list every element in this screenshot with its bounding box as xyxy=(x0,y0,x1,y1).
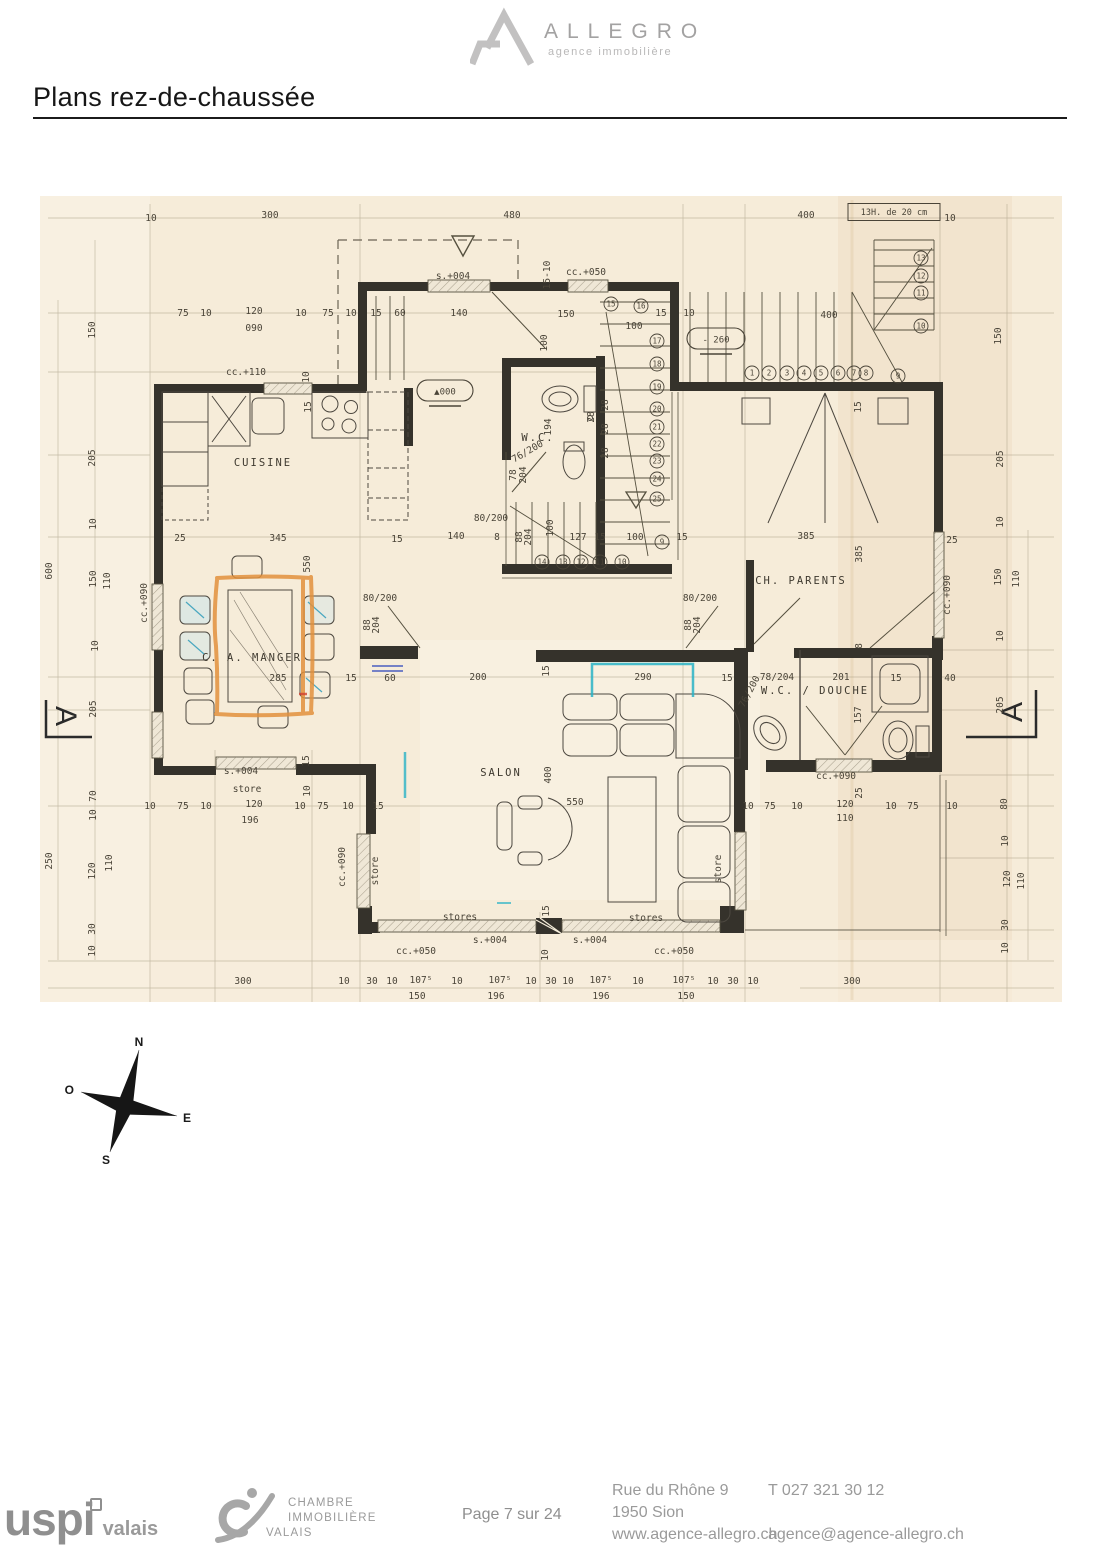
dim-label: 10 xyxy=(747,976,759,987)
dim-label: 75 xyxy=(177,801,188,812)
page-number: Page 7 sur 24 xyxy=(462,1506,562,1524)
dim-label: 290 xyxy=(634,672,651,683)
dim-label: 70 xyxy=(88,790,99,802)
step-number: 9 xyxy=(660,538,665,547)
dim-label: 400 xyxy=(797,210,814,221)
dim-label: 10 xyxy=(525,976,537,987)
dim-label: 10 xyxy=(946,801,958,812)
step-number: 12 xyxy=(576,558,585,567)
dim-label: 120 xyxy=(87,862,98,879)
dim-label: 205 xyxy=(87,449,98,466)
dim-label: 15 xyxy=(345,673,356,684)
step-number: 15 xyxy=(606,300,615,309)
dim-label: 150 xyxy=(88,570,99,587)
dim-label: 28 xyxy=(586,411,597,423)
uspi-region: valais xyxy=(103,1518,159,1540)
compass-star-icon xyxy=(81,1050,177,1152)
step-number: 19 xyxy=(652,383,661,392)
floor-plan-scan: A A 300480400101075101200901075101560140… xyxy=(0,0,1100,1561)
dim-label: 15-10 xyxy=(542,260,553,289)
phone-number: T 027 321 30 12 xyxy=(768,1480,964,1502)
dim-label: store xyxy=(713,854,724,883)
dim-label: 75 xyxy=(764,801,775,812)
dim-label: 15 xyxy=(301,755,312,766)
dim-label: 10 xyxy=(562,976,574,987)
dim-label: 28 xyxy=(600,423,611,435)
dim-label: 196 xyxy=(592,991,609,1002)
dim-label: 30 xyxy=(545,976,557,987)
uspi-square-icon xyxy=(90,1498,102,1511)
dim-label: 10 xyxy=(302,785,313,797)
room-label: W.C. / DOUCHE xyxy=(761,685,869,697)
dim-label: 385 xyxy=(854,545,865,562)
dim-label: cc.+090 xyxy=(816,771,856,782)
dim-label: 15 xyxy=(594,532,605,543)
dim-label: 10 xyxy=(200,308,212,319)
step-number: 23 xyxy=(652,457,661,466)
dim-label: 25 xyxy=(854,787,865,798)
compass-west: O xyxy=(65,1083,74,1097)
dim-label: 60 xyxy=(394,308,406,319)
dim-label: 15 xyxy=(303,401,314,412)
dim-label: 10 xyxy=(294,801,306,812)
dim-label: 300 xyxy=(234,976,251,987)
dim-label: 15 xyxy=(391,534,402,545)
section-letter: A xyxy=(49,706,82,726)
step-number: 12 xyxy=(916,272,925,281)
dim-label: 28 xyxy=(600,447,611,459)
compass-south: S xyxy=(102,1153,110,1167)
uspi-logo: uspivalais xyxy=(4,1492,158,1546)
dim-label: 120 xyxy=(245,306,262,317)
dim-label: 110 xyxy=(836,813,853,824)
room-label: C. A. MANGER xyxy=(202,652,302,664)
dim-label: 10 xyxy=(944,213,956,224)
compass-east: E xyxy=(183,1111,191,1125)
dim-label: 201 xyxy=(832,672,849,683)
dim-label: 120 xyxy=(836,799,853,810)
dim-label: 10 xyxy=(295,308,307,319)
dim-label: 100 xyxy=(625,321,642,332)
dim-label: 30 xyxy=(727,976,739,987)
step-number: 20 xyxy=(652,405,662,414)
dim-label: 110 xyxy=(102,572,113,589)
dim-label: 204 xyxy=(692,616,703,633)
dim-label: 196 xyxy=(241,815,258,826)
dim-label: 204 xyxy=(523,528,534,545)
agency-address: Rue du Rhône 9 1950 Sion www.agence-alle… xyxy=(612,1480,777,1546)
address-line: 1950 Sion xyxy=(612,1502,777,1524)
dim-label: 15 xyxy=(541,905,552,916)
dim-label: 80/200 xyxy=(363,593,398,604)
dim-label: 10 xyxy=(345,308,357,319)
level-label: ▲000 xyxy=(434,388,456,398)
dim-label: 200 xyxy=(469,672,486,683)
step-number: 14 xyxy=(537,558,547,567)
dim-label: 10 xyxy=(632,976,644,987)
dim-label: 10 xyxy=(995,516,1006,528)
step-number: 18 xyxy=(652,360,662,369)
step-number: 16 xyxy=(636,302,646,311)
dim-label: store xyxy=(370,856,381,885)
dim-label: 75 xyxy=(322,308,333,319)
dim-label: cc.+050 xyxy=(396,946,436,957)
dim-label: 100 xyxy=(539,334,550,351)
dim-label: 75 xyxy=(317,801,328,812)
page-footer: uspivalais CHAMBRE IMMOBILIÈRE VALAIS Pa… xyxy=(0,1480,1100,1561)
dim-label: 157 xyxy=(853,706,864,723)
dim-label: 140 xyxy=(450,308,467,319)
dim-label: 300 xyxy=(843,976,860,987)
dim-label: s.+004 xyxy=(436,271,471,282)
dim-label: store xyxy=(233,784,262,795)
uspi-wordmark: uspi xyxy=(4,1493,95,1545)
dim-label: 10 xyxy=(301,371,312,383)
dim-label: 25 xyxy=(946,535,957,546)
dim-label: 10 xyxy=(683,308,695,319)
dim-label: 8 xyxy=(854,643,865,649)
step-number: 13 xyxy=(916,254,925,263)
step-number: 7 xyxy=(852,369,857,378)
dim-label: cc.+090 xyxy=(942,575,953,615)
dim-label: 090 xyxy=(245,323,262,334)
dim-label: 10 xyxy=(200,801,212,812)
dim-label: 15 xyxy=(541,665,552,676)
step-number: 4 xyxy=(802,369,807,378)
dim-label: cc.+110 xyxy=(226,367,266,378)
dim-label: 30 xyxy=(366,976,378,987)
room-label: CUISINE xyxy=(234,457,292,469)
dim-label: 127 xyxy=(569,532,586,543)
dim-label: 8 xyxy=(494,532,500,543)
dim-label: 550 xyxy=(566,797,583,808)
step-number: 21 xyxy=(652,423,661,432)
step-number: 17 xyxy=(652,337,661,346)
dim-label: cc.+050 xyxy=(566,267,606,278)
dim-label: 15 xyxy=(890,673,901,684)
dim-label: 15 xyxy=(721,673,732,684)
dim-label: s.+004 xyxy=(573,935,608,946)
civ-text: CHAMBRE IMMOBILIÈRE VALAIS xyxy=(288,1496,377,1541)
step-number: 11 xyxy=(595,558,604,567)
dim-label: 10 xyxy=(995,630,1006,642)
dim-label: 110 xyxy=(104,854,115,871)
dim-label: 100 xyxy=(545,519,556,536)
step-number: 2 xyxy=(767,369,772,378)
step-number: 6 xyxy=(836,369,841,378)
civ-line: VALAIS xyxy=(266,1526,377,1541)
dim-label: 400 xyxy=(820,310,837,321)
dim-label: 30 xyxy=(1000,919,1011,931)
dim-label: 205 xyxy=(88,700,99,717)
dim-label: 10 xyxy=(145,213,157,224)
dim-label: 15 xyxy=(370,308,381,319)
dim-label: 150 xyxy=(993,568,1004,585)
chair xyxy=(304,596,334,624)
step-number: 24 xyxy=(652,475,662,484)
dim-label: cc.+090 xyxy=(139,583,150,623)
step-number: 11 xyxy=(916,289,925,298)
note-text: 13H. de 20 cm xyxy=(861,208,928,218)
dim-label: 300 xyxy=(261,210,278,221)
dim-label: 107⁵ xyxy=(489,975,512,986)
agency-website-link[interactable]: www.agence-allegro.ch xyxy=(612,1524,777,1546)
dim-label: 205 xyxy=(995,696,1006,713)
level-label: - 260 xyxy=(702,336,729,346)
dim-label: 10 xyxy=(386,976,398,987)
dim-label: 285 xyxy=(269,673,286,684)
step-number: 25 xyxy=(652,495,661,504)
dim-label: 75 xyxy=(907,801,918,812)
dim-label: 204 xyxy=(518,466,529,483)
dim-label: 10 xyxy=(451,976,463,987)
dim-label: 150 xyxy=(677,991,694,1002)
step-number: 9 xyxy=(896,372,901,381)
room-label: CH. PARENTS xyxy=(755,575,847,587)
dim-label: 400 xyxy=(543,766,554,783)
dim-label: 60 xyxy=(384,673,396,684)
dim-label: 15 xyxy=(853,401,864,412)
dim-label: 110 xyxy=(1011,570,1022,587)
dim-label: 10 xyxy=(342,801,354,812)
dim-label: 100 xyxy=(626,532,643,543)
agency-contact: T 027 321 30 12 agence@agence-allegro.ch xyxy=(768,1480,964,1546)
dim-label: 10 xyxy=(338,976,350,987)
step-number: 5 xyxy=(819,369,824,378)
step-number: 13 xyxy=(558,558,567,567)
step-number: 10 xyxy=(916,322,926,331)
step-number: 10 xyxy=(617,558,627,567)
step-number: 8 xyxy=(864,369,869,378)
dim-label: 196 xyxy=(487,991,504,1002)
dim-label: 140 xyxy=(447,531,464,542)
dim-label: 385 xyxy=(797,531,814,542)
dim-label: 10 xyxy=(90,640,101,652)
dim-label: 80/200 xyxy=(474,513,509,524)
dim-label: 205 xyxy=(995,450,1006,467)
dim-label: 10 xyxy=(88,809,99,821)
step-number: 3 xyxy=(785,369,790,378)
dim-label: 120 xyxy=(245,799,262,810)
chambre-immobiliere-logo: CHAMBRE IMMOBILIÈRE VALAIS xyxy=(210,1488,280,1551)
dim-label: 480 xyxy=(503,210,520,221)
dim-label: 10 xyxy=(88,518,99,530)
dim-label: stores xyxy=(443,912,477,923)
dim-label: cc.+050 xyxy=(654,946,694,957)
compass-north: N xyxy=(135,1035,144,1049)
room-label: W.C. xyxy=(521,432,554,444)
dim-label: 25 xyxy=(174,533,185,544)
dim-label: 10 xyxy=(87,945,98,957)
dim-label: 10 xyxy=(791,801,803,812)
dim-label: 10 xyxy=(1000,942,1011,954)
dim-label: 15 xyxy=(676,532,687,543)
dim-label: 10 xyxy=(144,801,156,812)
address-line: Rue du Rhône 9 xyxy=(612,1480,777,1502)
dim-label: 28 xyxy=(600,399,611,411)
dim-label: 107⁵ xyxy=(590,975,613,986)
dim-label: 10 xyxy=(885,801,897,812)
dim-label: 107⁵ xyxy=(673,975,696,986)
dim-label: s.+004 xyxy=(473,935,508,946)
compass-rose: N E S O xyxy=(65,1035,191,1167)
dim-label: 150 xyxy=(993,327,1004,344)
email-link[interactable]: agence@agence-allegro.ch xyxy=(768,1524,964,1546)
step-number: 1 xyxy=(750,369,755,378)
dim-label: 80 xyxy=(999,798,1010,810)
dim-label: 75 xyxy=(177,308,188,319)
dim-label: 550 xyxy=(302,555,313,572)
dim-label: 600 xyxy=(44,562,55,579)
dim-label: 10 xyxy=(707,976,719,987)
dim-label: 10 xyxy=(1000,835,1011,847)
dim-label: 150 xyxy=(408,991,425,1002)
dim-label: 78/204 xyxy=(760,672,795,683)
dim-label: 250 xyxy=(44,852,55,869)
dim-label: s.+004 xyxy=(224,766,259,777)
dim-label: cc.+090 xyxy=(337,847,348,887)
dim-label: 15 xyxy=(655,308,666,319)
dim-label: 345 xyxy=(269,533,286,544)
civ-line: CHAMBRE xyxy=(288,1496,377,1511)
dim-label: 30 xyxy=(87,923,98,935)
dim-label: 150 xyxy=(557,309,574,320)
dim-label: stores xyxy=(629,913,663,924)
dim-label: 40 xyxy=(944,673,956,684)
dim-label: 120 xyxy=(1002,870,1013,887)
dim-label: 10 xyxy=(540,949,551,961)
civ-line: IMMOBILIÈRE xyxy=(288,1511,377,1526)
dim-label: 150 xyxy=(87,321,98,338)
step-number: 22 xyxy=(652,440,661,449)
dim-label: 10 xyxy=(742,801,754,812)
dim-label: 204 xyxy=(371,616,382,633)
dim-label: 110 xyxy=(1016,872,1027,889)
dim-label: 107⁵ xyxy=(410,975,433,986)
dim-label: 80/200 xyxy=(683,593,718,604)
room-label: SALON xyxy=(480,767,522,779)
dim-label: 15 xyxy=(372,801,383,812)
